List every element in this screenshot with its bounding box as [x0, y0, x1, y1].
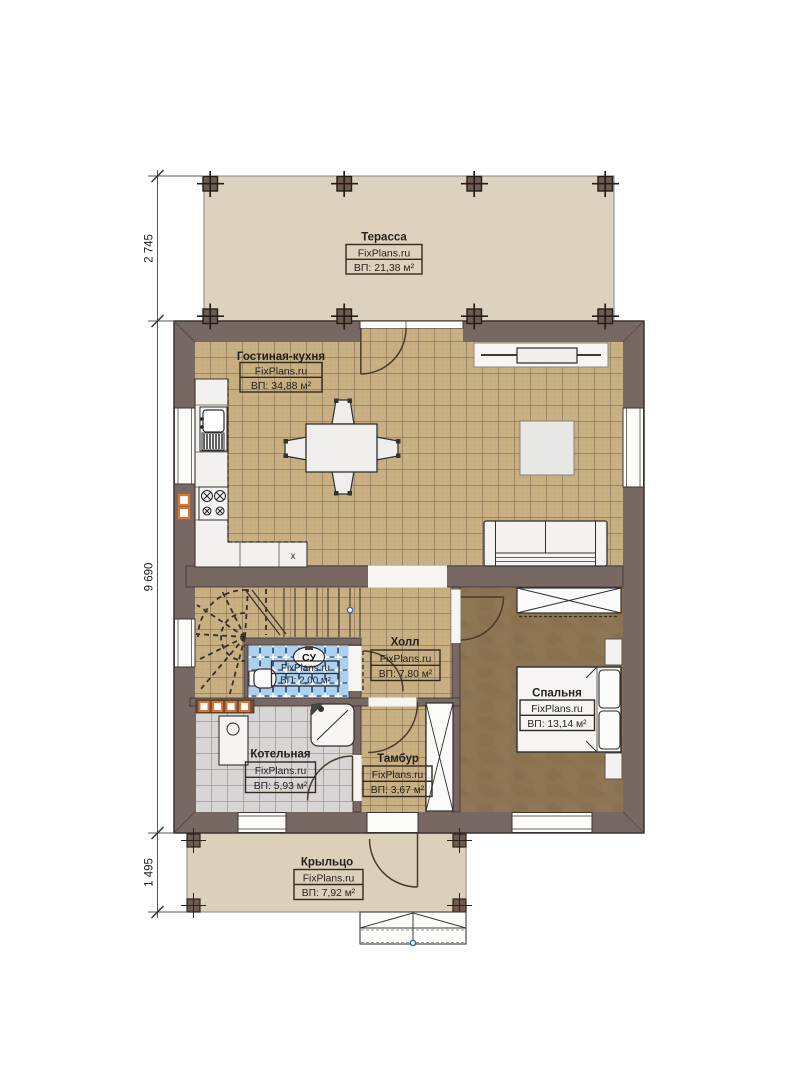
svg-text:Спальня: Спальня [532, 688, 582, 700]
svg-text:ВП: 5,93 м²: ВП: 5,93 м² [254, 781, 308, 792]
svg-text:Терасса: Терасса [361, 232, 407, 244]
svg-text:FixPlans.ru: FixPlans.ru [531, 704, 583, 715]
svg-text:Тамбур: Тамбур [377, 753, 419, 765]
svg-text:FixPlans.ru: FixPlans.ru [255, 766, 307, 777]
svg-text:Холл: Холл [391, 637, 420, 649]
svg-text:ВП: 7,92 м²: ВП: 7,92 м² [302, 888, 356, 899]
svg-text:Крыльцо: Крыльцо [301, 857, 353, 869]
svg-text:ВП: 2,00 м²: ВП: 2,00 м² [280, 676, 332, 687]
svg-text:ВП: 3,67 м²: ВП: 3,67 м² [371, 785, 425, 796]
svg-text:ВП: 34,88 м²: ВП: 34,88 м² [251, 380, 312, 392]
svg-text:FixPlans.ru: FixPlans.ru [255, 365, 308, 377]
svg-text:x: x [291, 551, 296, 562]
svg-text:9 690: 9 690 [144, 563, 156, 592]
svg-text:FixPlans.ru: FixPlans.ru [380, 654, 432, 665]
svg-text:FixPlans.ru: FixPlans.ru [281, 663, 330, 674]
svg-text:Котельная: Котельная [250, 749, 310, 761]
svg-text:ВП: 7,80 м²: ВП: 7,80 м² [379, 669, 433, 680]
svg-text:FixPlans.ru: FixPlans.ru [358, 248, 411, 260]
svg-text:2 745: 2 745 [144, 234, 156, 263]
svg-text:FixPlans.ru: FixPlans.ru [372, 770, 424, 781]
svg-text:1 495: 1 495 [144, 858, 156, 887]
svg-text:ВП: 13,14 м²: ВП: 13,14 м² [527, 719, 587, 730]
svg-text:ВП: 21,38 м²: ВП: 21,38 м² [354, 262, 415, 274]
svg-text:FixPlans.ru: FixPlans.ru [303, 873, 355, 884]
svg-text:Гостиная-кухня: Гостиная-кухня [237, 351, 325, 363]
